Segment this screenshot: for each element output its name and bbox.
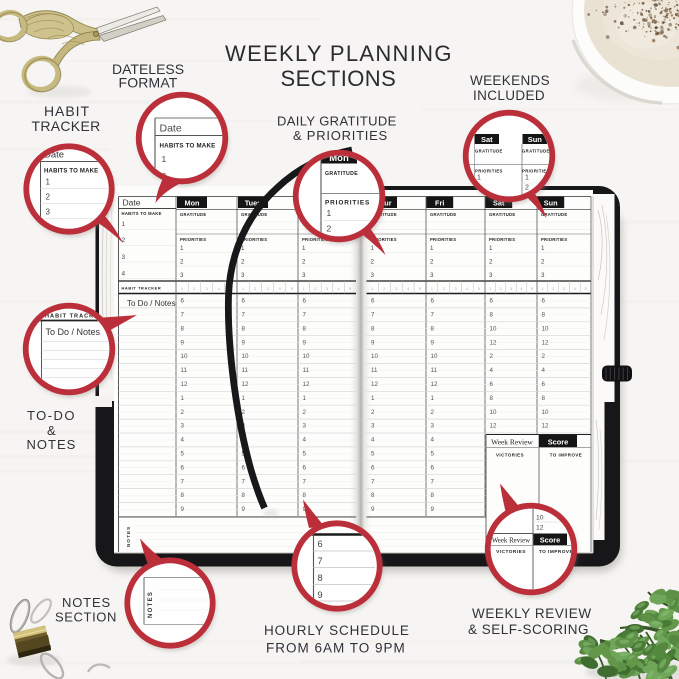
svg-text:1: 1 <box>242 287 244 291</box>
svg-text:3: 3 <box>371 272 375 279</box>
svg-text:2: 2 <box>314 287 316 291</box>
svg-text:8: 8 <box>431 492 435 499</box>
svg-text:3: 3 <box>303 423 307 430</box>
svg-text:NOTES: NOTES <box>62 595 111 610</box>
svg-text:2: 2 <box>242 409 246 416</box>
svg-text:10: 10 <box>242 353 249 360</box>
svg-text:To Do / Notes: To Do / Notes <box>127 299 175 308</box>
svg-text:8: 8 <box>303 492 307 499</box>
svg-text:2: 2 <box>180 259 184 266</box>
svg-text:5: 5 <box>291 287 293 291</box>
svg-text:4: 4 <box>407 287 409 291</box>
svg-text:TRACKER: TRACKER <box>32 118 101 134</box>
svg-text:PRIORITIES: PRIORITIES <box>522 169 550 174</box>
svg-text:NOTES: NOTES <box>126 526 131 547</box>
svg-text:1: 1 <box>541 245 545 252</box>
svg-text:TO IMPROVE: TO IMPROVE <box>550 453 583 458</box>
svg-text:NOTES: NOTES <box>27 437 77 452</box>
svg-text:8: 8 <box>371 492 375 499</box>
svg-text:5: 5 <box>349 287 351 291</box>
svg-text:Week Review: Week Review <box>492 538 530 545</box>
svg-text:1: 1 <box>180 245 184 252</box>
svg-text:2: 2 <box>500 287 502 291</box>
svg-text:4: 4 <box>371 437 375 444</box>
svg-text:8: 8 <box>242 492 246 499</box>
svg-text:PRIORITIES: PRIORITIES <box>430 237 456 242</box>
svg-text:Sun: Sun <box>544 199 558 208</box>
svg-text:Score: Score <box>548 438 569 447</box>
svg-text:3: 3 <box>510 287 512 291</box>
svg-text:5: 5 <box>303 451 307 458</box>
svg-text:Date: Date <box>160 123 182 135</box>
svg-text:10: 10 <box>490 409 497 416</box>
svg-text:FROM 6AM TO 9PM: FROM 6AM TO 9PM <box>266 641 406 656</box>
svg-text:3: 3 <box>326 287 328 291</box>
svg-text:1: 1 <box>371 395 375 402</box>
svg-text:9: 9 <box>371 339 375 346</box>
svg-text:4: 4 <box>338 287 340 291</box>
svg-text:3: 3 <box>122 254 126 261</box>
svg-text:12: 12 <box>542 423 549 430</box>
svg-text:GRATITUDE: GRATITUDE <box>489 212 515 217</box>
svg-text:6: 6 <box>371 298 375 305</box>
svg-text:HABITS TO MAKE: HABITS TO MAKE <box>122 211 162 216</box>
svg-text:7: 7 <box>242 312 246 319</box>
svg-text:3: 3 <box>46 208 51 217</box>
svg-text:11: 11 <box>303 367 310 374</box>
svg-text:12: 12 <box>181 381 188 388</box>
svg-text:Sat: Sat <box>481 135 493 144</box>
svg-text:2: 2 <box>383 287 385 291</box>
svg-text:6: 6 <box>181 464 185 471</box>
svg-text:8: 8 <box>181 325 185 332</box>
svg-text:& PRIORITIES: & PRIORITIES <box>293 128 388 143</box>
svg-text:WEEKLY PLANNING: WEEKLY PLANNING <box>225 41 453 66</box>
svg-text:12: 12 <box>536 525 544 532</box>
svg-text:Week Review: Week Review <box>491 438 533 447</box>
svg-text:TO IMPROVE: TO IMPROVE <box>539 549 573 554</box>
svg-text:8: 8 <box>490 395 494 402</box>
svg-text:GRATITUDE: GRATITUDE <box>325 171 358 177</box>
svg-text:3: 3 <box>541 272 545 279</box>
svg-text:7: 7 <box>181 312 185 319</box>
svg-text:& SELF-SCORING: & SELF-SCORING <box>468 622 589 637</box>
svg-text:12: 12 <box>542 339 549 346</box>
svg-text:10: 10 <box>536 515 544 522</box>
svg-text:8: 8 <box>542 395 546 402</box>
svg-text:12: 12 <box>242 381 249 388</box>
svg-text:11: 11 <box>431 367 438 374</box>
svg-text:Score: Score <box>540 536 561 545</box>
svg-text:2: 2 <box>542 353 546 360</box>
svg-text:7: 7 <box>431 478 435 485</box>
svg-text:6: 6 <box>181 298 185 305</box>
svg-text:PRIORITIES: PRIORITIES <box>489 237 515 242</box>
svg-text:9: 9 <box>371 506 375 513</box>
svg-text:NOTES: NOTES <box>148 591 154 618</box>
svg-text:2: 2 <box>443 287 445 291</box>
svg-text:4: 4 <box>218 287 220 291</box>
svg-text:4: 4 <box>122 271 126 278</box>
svg-text:6: 6 <box>542 381 546 388</box>
svg-text:HABITS TO MAKE: HABITS TO MAKE <box>44 169 98 175</box>
svg-text:PRIORITIES: PRIORITIES <box>325 200 370 207</box>
svg-text:10: 10 <box>181 353 188 360</box>
svg-text:4: 4 <box>574 287 576 291</box>
svg-text:GRATITUDE: GRATITUDE <box>430 212 456 217</box>
svg-text:1: 1 <box>303 287 305 291</box>
svg-text:6: 6 <box>490 381 494 388</box>
svg-text:6: 6 <box>542 298 546 305</box>
svg-text:2: 2 <box>303 409 307 416</box>
svg-text:GRATITUDE: GRATITUDE <box>522 149 550 154</box>
svg-text:1: 1 <box>525 175 529 182</box>
svg-text:FORMAT: FORMAT <box>119 75 178 91</box>
svg-text:6: 6 <box>318 539 323 549</box>
svg-text:2: 2 <box>552 287 554 291</box>
svg-text:7: 7 <box>303 478 307 485</box>
svg-text:1: 1 <box>302 245 306 252</box>
svg-text:3: 3 <box>430 272 434 279</box>
svg-text:8: 8 <box>318 573 323 583</box>
svg-text:2: 2 <box>46 193 51 202</box>
svg-text:1: 1 <box>46 178 51 187</box>
svg-text:10: 10 <box>542 325 549 332</box>
svg-text:Date: Date <box>123 198 141 208</box>
svg-text:1: 1 <box>327 208 332 218</box>
svg-text:7: 7 <box>303 312 307 319</box>
svg-text:SECTIONS: SECTIONS <box>281 66 397 91</box>
svg-text:1: 1 <box>371 245 375 252</box>
svg-text:WEEKLY REVIEW: WEEKLY REVIEW <box>472 606 592 621</box>
svg-text:6: 6 <box>242 464 246 471</box>
svg-text:9: 9 <box>318 590 323 600</box>
svg-text:9: 9 <box>431 339 435 346</box>
svg-text:11: 11 <box>242 367 249 374</box>
svg-text:3: 3 <box>431 423 435 430</box>
svg-text:6: 6 <box>431 298 435 305</box>
svg-text:2: 2 <box>371 409 375 416</box>
svg-text:6: 6 <box>371 464 375 471</box>
svg-text:12: 12 <box>490 423 497 430</box>
svg-text:9: 9 <box>181 339 185 346</box>
svg-text:7: 7 <box>371 312 375 319</box>
svg-text:12: 12 <box>371 381 378 388</box>
svg-text:1: 1 <box>430 245 434 252</box>
svg-text:Mon: Mon <box>185 199 200 208</box>
svg-text:To Do / Notes: To Do / Notes <box>46 327 101 337</box>
svg-text:Sun: Sun <box>528 135 543 144</box>
svg-text:1: 1 <box>371 287 373 291</box>
svg-text:1: 1 <box>162 154 167 164</box>
svg-text:2: 2 <box>489 259 493 266</box>
svg-text:WEEKENDS: WEEKENDS <box>470 73 550 88</box>
svg-text:8: 8 <box>542 312 546 319</box>
svg-text:3: 3 <box>395 287 397 291</box>
svg-text:2: 2 <box>431 409 435 416</box>
svg-text:5: 5 <box>371 451 375 458</box>
svg-text:HABITS TO MAKE: HABITS TO MAKE <box>160 143 216 150</box>
svg-text:8: 8 <box>371 325 375 332</box>
svg-text:HABIT TRACKER: HABIT TRACKER <box>122 286 162 291</box>
svg-text:2: 2 <box>490 353 494 360</box>
svg-text:1: 1 <box>122 221 126 228</box>
svg-text:2: 2 <box>525 185 529 192</box>
svg-text:1: 1 <box>431 395 435 402</box>
svg-text:1: 1 <box>477 175 481 182</box>
svg-text:2: 2 <box>181 409 185 416</box>
svg-text:4: 4 <box>279 287 281 291</box>
svg-text:9: 9 <box>242 339 246 346</box>
svg-text:PRIORITIES: PRIORITIES <box>475 169 503 174</box>
svg-text:2: 2 <box>541 259 545 266</box>
svg-text:1: 1 <box>181 287 183 291</box>
svg-text:2: 2 <box>302 259 306 266</box>
svg-text:VICTORIES: VICTORIES <box>496 453 524 458</box>
svg-text:3: 3 <box>180 272 184 279</box>
svg-text:6: 6 <box>431 464 435 471</box>
svg-text:3: 3 <box>241 272 245 279</box>
svg-text:8: 8 <box>242 325 246 332</box>
svg-text:11: 11 <box>181 367 188 374</box>
svg-text:INCLUDED: INCLUDED <box>473 88 545 103</box>
svg-text:2: 2 <box>254 287 256 291</box>
svg-text:1: 1 <box>489 245 493 252</box>
svg-text:4: 4 <box>303 437 307 444</box>
svg-text:6: 6 <box>303 298 307 305</box>
svg-text:GRATITUDE: GRATITUDE <box>180 212 206 217</box>
svg-text:4: 4 <box>466 287 468 291</box>
svg-text:3: 3 <box>266 287 268 291</box>
svg-text:6: 6 <box>303 464 307 471</box>
svg-text:GRATITUDE: GRATITUDE <box>475 149 503 154</box>
svg-text:9: 9 <box>431 506 435 513</box>
svg-text:PRIORITIES: PRIORITIES <box>180 237 206 242</box>
svg-text:2: 2 <box>430 259 434 266</box>
svg-text:4: 4 <box>490 367 494 374</box>
svg-text:3: 3 <box>563 287 565 291</box>
svg-text:1: 1 <box>541 287 543 291</box>
svg-text:2: 2 <box>122 237 126 244</box>
svg-text:VICTORIES: VICTORIES <box>496 549 526 554</box>
svg-text:3: 3 <box>489 272 493 279</box>
svg-text:3: 3 <box>205 287 207 291</box>
svg-text:2: 2 <box>327 224 332 234</box>
svg-text:4: 4 <box>520 287 522 291</box>
svg-text:5: 5 <box>585 287 587 291</box>
svg-text:3: 3 <box>302 272 306 279</box>
svg-text:HABIT: HABIT <box>44 103 90 119</box>
svg-text:7: 7 <box>318 556 323 566</box>
svg-text:5: 5 <box>181 451 185 458</box>
svg-text:SECTION: SECTION <box>55 610 117 625</box>
svg-text:9: 9 <box>181 506 185 513</box>
svg-text:6: 6 <box>490 298 494 305</box>
svg-text:12: 12 <box>431 381 438 388</box>
svg-text:6: 6 <box>242 298 246 305</box>
svg-text:12: 12 <box>490 339 497 346</box>
svg-text:1: 1 <box>489 287 491 291</box>
svg-text:10: 10 <box>303 353 310 360</box>
svg-text:7: 7 <box>371 478 375 485</box>
svg-text:2: 2 <box>241 259 245 266</box>
svg-text:1: 1 <box>303 395 307 402</box>
svg-text:TO-DO: TO-DO <box>27 408 76 423</box>
svg-text:3: 3 <box>371 423 375 430</box>
svg-text:4: 4 <box>181 437 185 444</box>
svg-text:1: 1 <box>181 395 185 402</box>
svg-text:PRIORITIES: PRIORITIES <box>541 237 567 242</box>
svg-text:Fri: Fri <box>435 199 444 208</box>
svg-text:3: 3 <box>181 423 185 430</box>
svg-text:2: 2 <box>193 287 195 291</box>
svg-text:2: 2 <box>371 259 375 266</box>
svg-text:7: 7 <box>242 478 246 485</box>
svg-text:8: 8 <box>181 492 185 499</box>
svg-text:9: 9 <box>303 339 307 346</box>
svg-text:&: & <box>47 423 56 438</box>
svg-text:1: 1 <box>242 395 246 402</box>
svg-text:4: 4 <box>542 367 546 374</box>
svg-text:12: 12 <box>303 381 310 388</box>
svg-text:4: 4 <box>431 437 435 444</box>
svg-text:5: 5 <box>478 287 480 291</box>
svg-text:8: 8 <box>303 325 307 332</box>
svg-text:DAILY GRATITUDE: DAILY GRATITUDE <box>277 114 397 129</box>
svg-text:5: 5 <box>419 287 421 291</box>
svg-text:9: 9 <box>242 506 246 513</box>
svg-text:1: 1 <box>431 287 433 291</box>
svg-text:3: 3 <box>454 287 456 291</box>
svg-text:HOURLY SCHEDULE: HOURLY SCHEDULE <box>264 623 410 638</box>
svg-text:7: 7 <box>431 312 435 319</box>
svg-text:10: 10 <box>542 409 549 416</box>
svg-text:10: 10 <box>371 353 378 360</box>
svg-text:5: 5 <box>531 287 533 291</box>
svg-text:8: 8 <box>431 325 435 332</box>
svg-text:10: 10 <box>431 353 438 360</box>
svg-text:10: 10 <box>490 325 497 332</box>
svg-text:8: 8 <box>490 312 494 319</box>
svg-text:11: 11 <box>371 367 378 374</box>
svg-text:5: 5 <box>431 451 435 458</box>
svg-text:7: 7 <box>181 478 185 485</box>
